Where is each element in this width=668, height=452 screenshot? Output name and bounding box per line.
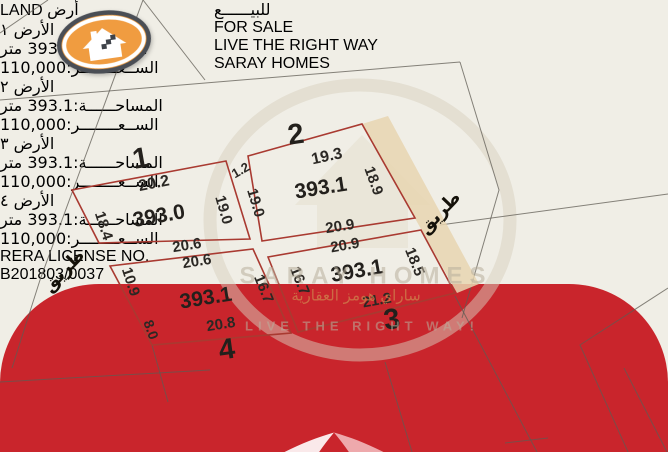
dimension-label: 20.9 [329, 235, 361, 257]
plot-number-label: 1 [130, 142, 151, 176]
watermark-text: SARAY HOMES [239, 262, 492, 289]
for-sale-arabic: للبيــــــع [214, 0, 668, 19]
dimension-label: 8.0 [140, 318, 162, 342]
house-logo-icon [52, 4, 156, 81]
dimension-label: 10.9 [118, 265, 143, 298]
plot-area-label: 393.0 [131, 200, 187, 232]
dimension-label: 18.4 [91, 209, 116, 243]
for-sale-block: للبيــــــع FOR SALE [214, 0, 668, 37]
saray-homes-logo [52, 4, 156, 81]
road-label: طريق [38, 245, 89, 296]
flyer: 1234393.0393.1393.1393.120.218.419.020.6… [0, 0, 668, 452]
dimension-label: 20.6 [181, 251, 213, 272]
brand-block: LIVE THE RIGHT WAY SARAY HOMES [214, 37, 668, 73]
plot-number-label: 2 [286, 118, 306, 152]
plot-area-label: 393.1 [178, 283, 234, 314]
watermark-text: ساراي هومز العقارية [291, 287, 420, 306]
watermark-text: LIVE THE RIGHT WAY! [245, 318, 479, 333]
brand-tagline: LIVE THE RIGHT WAY [214, 37, 668, 55]
dimension-label: 19.0 [243, 186, 268, 219]
brand-name: SARAY HOMES [214, 55, 668, 73]
for-sale-english: FOR SALE [214, 19, 668, 37]
dimension-label: 20.2 [137, 172, 171, 195]
for-sale-banner: للبيــــــع FOR SALE LIVE THE RIGHT WAY … [214, 0, 668, 59]
